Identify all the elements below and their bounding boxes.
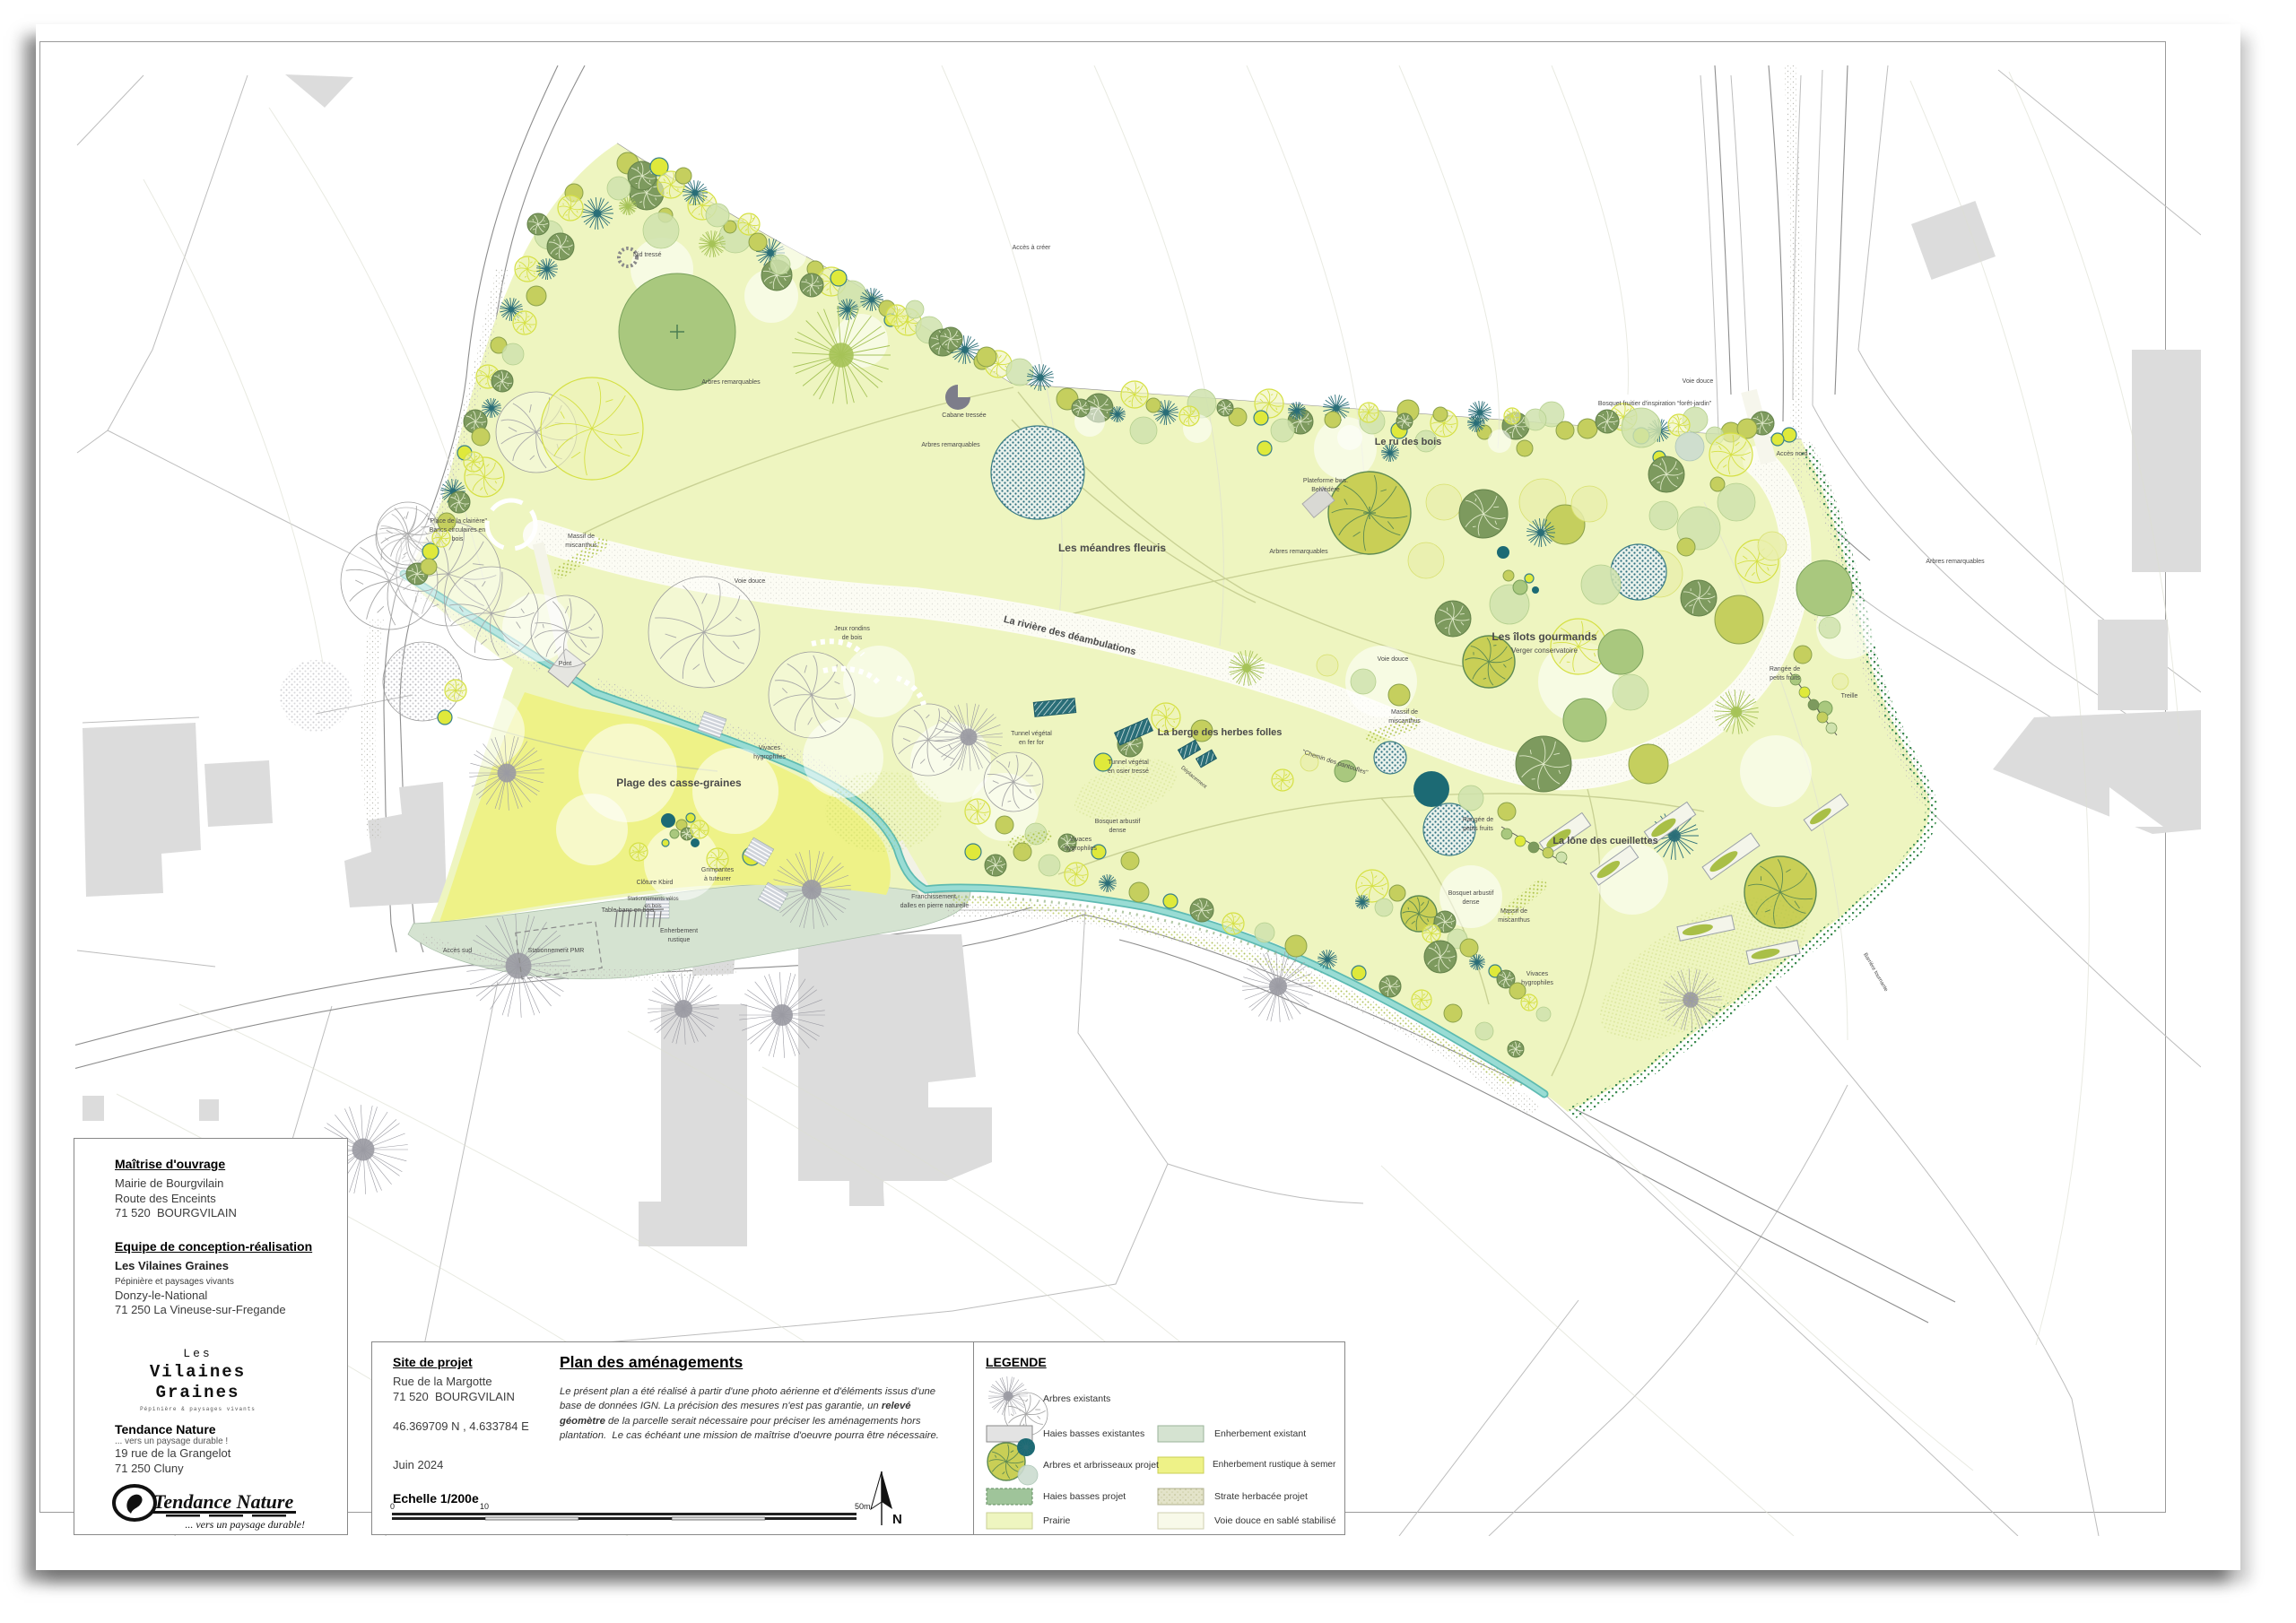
svg-text:Cabane tressée: Cabane tressée — [942, 412, 987, 419]
svg-text:10: 10 — [480, 1502, 489, 1511]
svg-text:Belvédère: Belvédère — [1311, 487, 1340, 493]
svg-text:Vivaces: Vivaces — [1070, 837, 1092, 843]
svg-text:0: 0 — [390, 1502, 395, 1511]
svg-text:hygrophiles: hygrophiles — [1065, 846, 1097, 852]
svg-text:Bancs circulaires en: Bancs circulaires en — [430, 527, 486, 534]
svg-text:Nid tressé: Nid tressé — [633, 252, 662, 258]
svg-text:Bosquet fruitier d'inspiration: Bosquet fruitier d'inspiration “forêt-ja… — [1598, 401, 1712, 407]
svg-text:petits fruits: petits fruits — [1463, 826, 1493, 832]
svg-text:hygrophiles: hygrophiles — [1521, 980, 1553, 986]
svg-text:Arbres remarquables: Arbres remarquables — [1926, 559, 1985, 565]
svg-text:en fer for: en fer for — [1019, 740, 1045, 746]
svg-text:en osier tressé: en osier tressé — [1108, 768, 1149, 775]
svg-text:N: N — [892, 1512, 902, 1527]
svg-text:rustique: rustique — [668, 937, 691, 943]
svg-text:Voie douce: Voie douce — [1683, 378, 1714, 385]
svg-text:Grimpantes: Grimpantes — [701, 867, 735, 873]
svg-text:Stationnement PMR: Stationnement PMR — [528, 948, 585, 954]
svg-text:bois: bois — [452, 536, 464, 542]
svg-text:hygrophiles: hygrophiles — [753, 754, 786, 760]
svg-text:Franchissement,: Franchissement, — [911, 894, 958, 900]
svg-text:Les méandres fleuris: Les méandres fleuris — [1058, 542, 1166, 554]
svg-text:en bois: en bois — [644, 904, 661, 909]
svg-text:Accès sud: Accès sud — [443, 948, 472, 954]
svg-text:"Place de la clairière": "Place de la clairière" — [428, 518, 488, 525]
svg-text:Voie douce: Voie douce — [735, 578, 766, 585]
svg-text:Voie douce: Voie douce — [1378, 656, 1409, 663]
svg-text:miscanthus: miscanthus — [565, 542, 597, 549]
svg-text:Accès à créer: Accès à créer — [1013, 245, 1051, 251]
svg-text:Rangée de: Rangée de — [1463, 817, 1493, 823]
svg-text:Jeux rondins: Jeux rondins — [834, 626, 870, 632]
svg-text:Massif de: Massif de — [568, 534, 595, 540]
svg-text:Bosquet arbustif: Bosquet arbustif — [1095, 819, 1141, 825]
svg-text:Rangée de: Rangée de — [1770, 666, 1800, 673]
svg-text:Treille: Treille — [1841, 693, 1858, 699]
svg-text:Stationnements vélos: Stationnements vélos — [627, 897, 678, 902]
svg-text:Les îlots gourmands: Les îlots gourmands — [1492, 630, 1597, 643]
svg-text:Enherbement: Enherbement — [660, 928, 698, 934]
svg-text:dalles en pierre naturelle: dalles en pierre naturelle — [900, 903, 970, 909]
svg-text:Le ru des bois: Le ru des bois — [1375, 437, 1442, 447]
svg-text:Bosquet arbustif: Bosquet arbustif — [1448, 890, 1494, 897]
svg-text:Arbres remarquables: Arbres remarquables — [701, 379, 761, 386]
svg-text:Arbres remarquables: Arbres remarquables — [1269, 549, 1328, 555]
svg-text:miscanthus: miscanthus — [1498, 917, 1530, 924]
svg-text:dense: dense — [1462, 899, 1479, 906]
svg-text:Massif de: Massif de — [1500, 908, 1527, 915]
svg-text:Tendance Nature: Tendance Nature — [153, 1490, 293, 1513]
svg-text:Barrière tournante: Barrière tournante — [1862, 952, 1889, 993]
svg-text:Vivaces: Vivaces — [1526, 971, 1549, 977]
svg-text:Accès nord: Accès nord — [1776, 451, 1807, 457]
svg-text:Plateforme bws.: Plateforme bws. — [1303, 478, 1348, 484]
svg-text:... vers un paysage durable!: ... vers un paysage durable! — [185, 1518, 305, 1531]
svg-text:à tuteurer: à tuteurer — [704, 876, 732, 882]
svg-text:Verger conservatoire: Verger conservatoire — [1511, 647, 1578, 655]
svg-text:La berge des herbes folles: La berge des herbes folles — [1158, 727, 1283, 738]
svg-text:miscanthus: miscanthus — [1388, 718, 1421, 725]
svg-text:Massif de: Massif de — [1391, 709, 1418, 716]
svg-text:dense: dense — [1109, 828, 1126, 834]
svg-text:Clôture Kbird: Clôture Kbird — [637, 880, 674, 886]
svg-text:Plage des casse-graines: Plage des casse-graines — [616, 777, 742, 789]
svg-text:de bois: de bois — [842, 635, 863, 641]
svg-text:Tunnel végétal: Tunnel végétal — [1108, 759, 1149, 766]
svg-text:petits fruits: petits fruits — [1770, 675, 1800, 681]
svg-text:Arbres remarquables: Arbres remarquables — [921, 442, 980, 448]
svg-text:Tunnel végétal: Tunnel végétal — [1011, 731, 1052, 737]
svg-text:La lône des cueillettes: La lône des cueillettes — [1552, 836, 1657, 846]
svg-text:Pont: Pont — [559, 661, 571, 667]
svg-text:Vivaces: Vivaces — [759, 745, 781, 751]
